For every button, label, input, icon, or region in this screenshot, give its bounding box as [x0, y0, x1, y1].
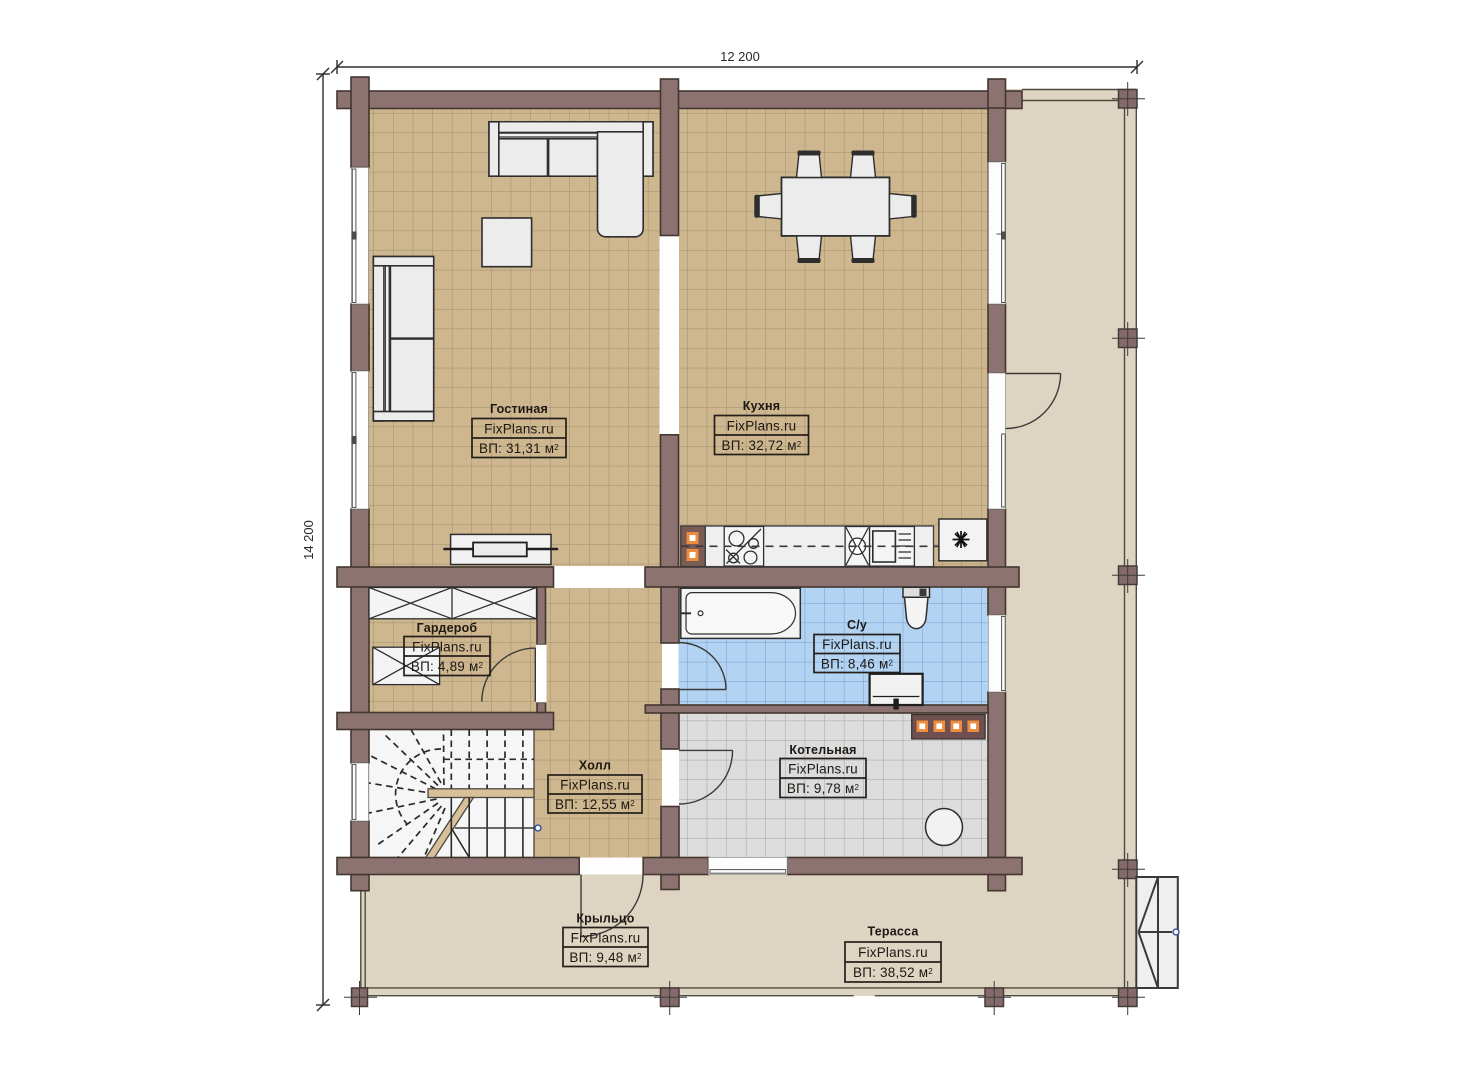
svg-text:ВП: 32,72 м2: ВП: 32,72 м2: [722, 438, 802, 453]
svg-text:FixPlans.ru: FixPlans.ru: [788, 762, 858, 777]
svg-text:FixPlans.ru: FixPlans.ru: [484, 422, 554, 437]
svg-text:Кухня: Кухня: [743, 399, 781, 413]
svg-text:FixPlans.ru: FixPlans.ru: [560, 778, 630, 793]
svg-text:ВП: 9,78 м2: ВП: 9,78 м2: [787, 781, 860, 796]
svg-text:FixPlans.ru: FixPlans.ru: [727, 419, 797, 434]
svg-text:ВП: 4,89 м2: ВП: 4,89 м2: [411, 659, 484, 674]
svg-text:Холл: Холл: [579, 759, 611, 773]
svg-text:12 200: 12 200: [720, 49, 760, 64]
svg-text:ВП: 38,52 м2: ВП: 38,52 м2: [853, 965, 933, 980]
svg-text:ВП: 8,46 м2: ВП: 8,46 м2: [821, 657, 894, 672]
svg-text:Крыльцо: Крыльцо: [576, 912, 634, 926]
svg-text:FixPlans.ru: FixPlans.ru: [858, 945, 928, 960]
svg-text:FixPlans.ru: FixPlans.ru: [571, 931, 641, 946]
svg-text:Гостиная: Гостиная: [490, 402, 548, 416]
svg-text:FixPlans.ru: FixPlans.ru: [412, 640, 482, 655]
svg-text:14 200: 14 200: [301, 520, 316, 560]
svg-text:Котельная: Котельная: [789, 743, 856, 757]
svg-text:ВП: 9,48 м2: ВП: 9,48 м2: [569, 950, 642, 965]
svg-text:Терасса: Терасса: [868, 925, 920, 939]
svg-text:ВП: 31,31 м2: ВП: 31,31 м2: [479, 441, 559, 456]
svg-text:FixPlans.ru: FixPlans.ru: [822, 637, 892, 652]
svg-text:ВП: 12,55 м2: ВП: 12,55 м2: [555, 797, 635, 812]
svg-text:Гардероб: Гардероб: [417, 621, 478, 635]
svg-text:С/у: С/у: [847, 618, 867, 632]
